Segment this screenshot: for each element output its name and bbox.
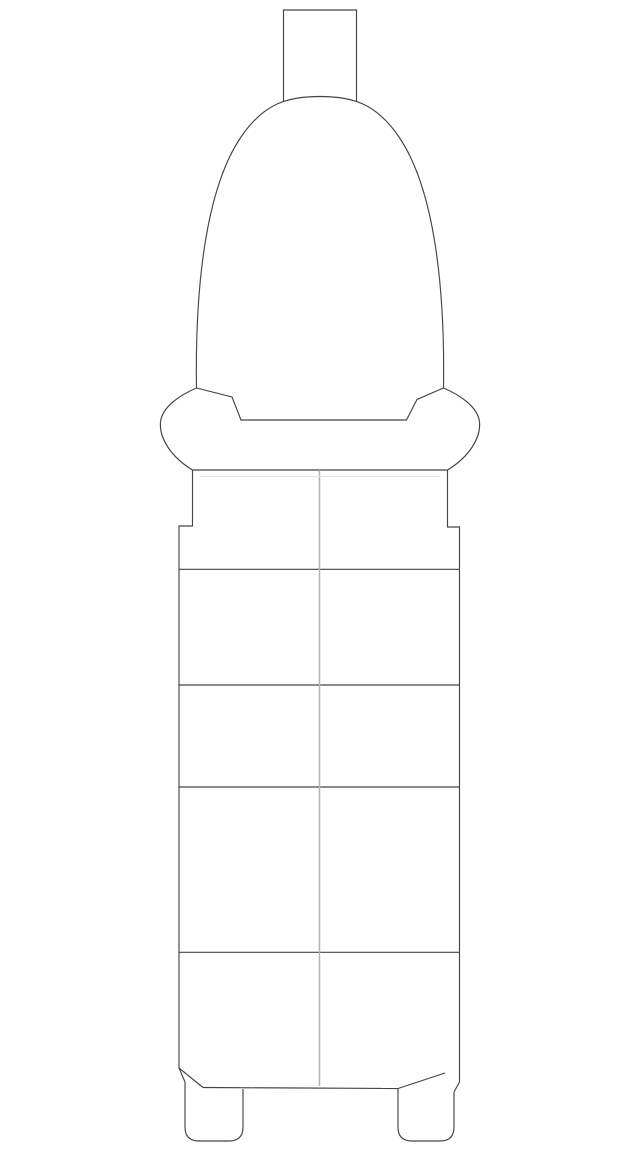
left-foot-outline <box>179 1068 243 1141</box>
collar-outer-outline <box>160 388 479 470</box>
terminal-tab-outline <box>284 10 357 102</box>
parts-diagram-canvas <box>0 0 640 1153</box>
dome-tower-outline <box>196 97 443 389</box>
collar-inner-recess-line <box>197 388 444 420</box>
body-bottom-edge <box>203 1088 398 1089</box>
part-line-drawing <box>0 0 640 1153</box>
right-chamfer-line <box>398 1073 445 1089</box>
right-foot-outline <box>398 1082 460 1141</box>
